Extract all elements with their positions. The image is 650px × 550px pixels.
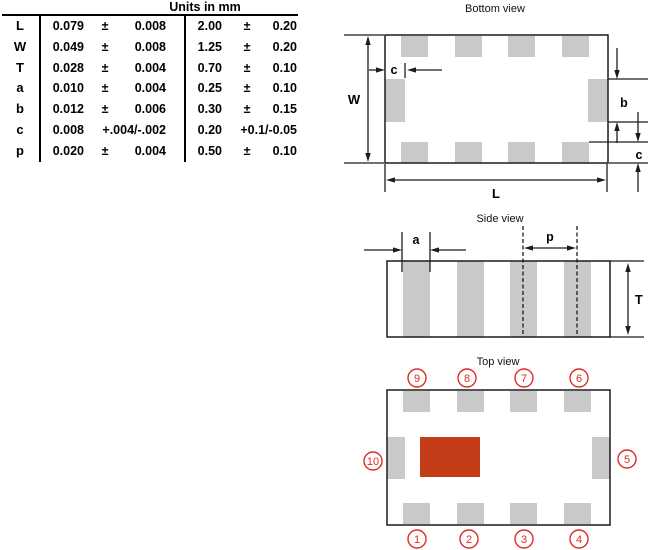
- pin-number: 1: [414, 534, 420, 546]
- arrowhead-icon: [614, 122, 619, 131]
- label-L: L: [492, 186, 500, 201]
- label-a: a: [413, 233, 421, 247]
- pad: [403, 503, 430, 524]
- top-view-drawing: Top view 9 8 7 6 10 5 1 2 3: [330, 355, 650, 550]
- dim-symbol: c: [4, 120, 36, 141]
- dimension-L: L: [385, 164, 607, 201]
- tolerance-mm: +0.1/-0.05: [240, 120, 297, 141]
- table-row: b 0.012 ± 0.006 0.30 ± 0.15: [0, 99, 300, 120]
- pad: [455, 36, 482, 57]
- value-inch: 0.079: [53, 16, 84, 37]
- tolerance-inch: +.004/-.002: [102, 120, 166, 141]
- pin-10: 10: [364, 452, 382, 470]
- dim-symbol: p: [4, 141, 36, 162]
- value-mm: 2.00: [198, 16, 222, 37]
- pin-number: 10: [367, 456, 379, 468]
- value-mm: 0.20: [198, 120, 222, 141]
- pin-number: 7: [521, 373, 527, 385]
- terminal-pads: [385, 36, 608, 163]
- plus-minus: ±: [244, 99, 251, 120]
- tolerance-inch: 0.008: [135, 37, 166, 58]
- label-c: c: [391, 63, 398, 77]
- plus-minus: ±: [102, 78, 109, 99]
- value-mm: 1.25: [198, 37, 222, 58]
- arrowhead-icon: [614, 70, 619, 79]
- value-mm: 0.25: [198, 78, 222, 99]
- pad: [403, 261, 430, 337]
- table-row: L 0.079 ± 0.008 2.00 ± 0.20: [0, 16, 300, 37]
- label-p: p: [546, 230, 554, 244]
- pin-9: 9: [408, 369, 426, 387]
- arrowhead-icon: [430, 247, 439, 252]
- pad: [457, 503, 484, 524]
- pad: [562, 142, 589, 163]
- tolerance-inch: 0.006: [135, 99, 166, 120]
- plus-minus: ±: [244, 78, 251, 99]
- arrowhead-icon: [386, 177, 395, 182]
- pad-side-right: [588, 79, 608, 122]
- pad: [401, 36, 428, 57]
- value-mm: 0.50: [198, 141, 222, 162]
- value-inch: 0.012: [53, 99, 84, 120]
- arrowhead-icon: [625, 263, 630, 272]
- pin-number: 2: [466, 534, 472, 546]
- table-row: T 0.028 ± 0.004 0.70 ± 0.10: [0, 58, 300, 79]
- dimension-b: b: [608, 48, 648, 143]
- tolerance-mm: 0.20: [273, 37, 297, 58]
- label-c: c: [636, 148, 643, 162]
- arrowhead-icon: [635, 163, 640, 172]
- value-inch: 0.010: [53, 78, 84, 99]
- dimension-c-top: c: [369, 63, 442, 78]
- tolerance-inch: 0.004: [135, 78, 166, 99]
- pin-5: 5: [618, 450, 636, 468]
- label-W: W: [348, 92, 361, 107]
- arrowhead-icon: [597, 177, 606, 182]
- value-inch: 0.008: [53, 120, 84, 141]
- pin-6: 6: [570, 369, 588, 387]
- plus-minus: ±: [102, 16, 109, 37]
- tolerance-mm: 0.10: [273, 58, 297, 79]
- arrowhead-icon: [567, 245, 576, 250]
- arrowhead-icon: [524, 245, 533, 250]
- dim-symbol: b: [4, 99, 36, 120]
- dim-symbol: T: [4, 58, 36, 79]
- tolerance-mm: 0.10: [273, 78, 297, 99]
- pad-side-left: [387, 437, 405, 479]
- pin-4: 4: [570, 530, 588, 548]
- tolerance-mm: 0.15: [273, 99, 297, 120]
- units-header: Units in mm: [143, 0, 267, 14]
- value-inch: 0.028: [53, 58, 84, 79]
- pad: [562, 36, 589, 57]
- tolerance-mm: 0.20: [273, 16, 297, 37]
- pad: [564, 391, 591, 412]
- top-view-title: Top view: [477, 356, 520, 368]
- arrowhead-icon: [365, 153, 370, 162]
- pad: [457, 261, 484, 337]
- pad: [455, 142, 482, 163]
- pin-number: 6: [576, 373, 582, 385]
- pin-7: 7: [515, 369, 533, 387]
- pad-side-left: [385, 79, 405, 122]
- dimension-T: T: [610, 261, 644, 337]
- table-row: W 0.049 ± 0.008 1.25 ± 0.20: [0, 37, 300, 58]
- plus-minus: ±: [102, 37, 109, 58]
- pin-number: 5: [624, 454, 630, 466]
- side-view-drawing: Side view a p T: [330, 205, 650, 355]
- table-row: p 0.020 ± 0.004 0.50 ± 0.10: [0, 141, 300, 162]
- plus-minus: ±: [244, 16, 251, 37]
- dim-symbol: W: [4, 37, 36, 58]
- pin-number: 8: [464, 373, 470, 385]
- terminal-stripes: [403, 261, 591, 337]
- plus-minus: ±: [244, 58, 251, 79]
- pin-3: 3: [515, 530, 533, 548]
- plus-minus: ±: [102, 58, 109, 79]
- tolerance-inch: 0.004: [135, 58, 166, 79]
- table-row: a 0.010 ± 0.004 0.25 ± 0.10: [0, 78, 300, 99]
- marking-block: [420, 437, 480, 477]
- table-row: c 0.008 +.004/-.002 0.20 +0.1/-0.05: [0, 120, 300, 141]
- pin-number: 4: [576, 534, 582, 546]
- value-inch: 0.049: [53, 37, 84, 58]
- pin-2: 2: [460, 530, 478, 548]
- pin-number: 3: [521, 534, 527, 546]
- plus-minus: ±: [244, 141, 251, 162]
- pin-8: 8: [458, 369, 476, 387]
- label-T: T: [635, 293, 643, 307]
- plus-minus: ±: [102, 99, 109, 120]
- pad: [564, 503, 591, 524]
- pad: [457, 391, 484, 412]
- plus-minus: ±: [244, 37, 251, 58]
- label-b: b: [620, 96, 628, 110]
- tolerance-inch: 0.008: [135, 16, 166, 37]
- pad-side-right: [592, 437, 610, 479]
- arrowhead-icon: [635, 133, 640, 142]
- value-mm: 0.30: [198, 99, 222, 120]
- dimension-table: Units in mm L 0.079 ± 0.008 2.00 ± 0.20 …: [0, 0, 300, 172]
- side-view-title: Side view: [476, 213, 523, 225]
- tolerance-inch: 0.004: [135, 141, 166, 162]
- dim-symbol: a: [4, 78, 36, 99]
- pin-number: 9: [414, 373, 420, 385]
- pad: [508, 142, 535, 163]
- plus-minus: ±: [102, 141, 109, 162]
- arrowhead-icon: [393, 247, 402, 252]
- pin-1: 1: [408, 530, 426, 548]
- arrowhead-icon: [625, 326, 630, 335]
- arrowhead-icon: [376, 67, 385, 72]
- table-rows: L 0.079 ± 0.008 2.00 ± 0.20 W 0.049 ± 0.…: [0, 16, 300, 162]
- pad: [508, 36, 535, 57]
- pad: [403, 391, 430, 412]
- pad: [401, 142, 428, 163]
- value-mm: 0.70: [198, 58, 222, 79]
- value-inch: 0.020: [53, 141, 84, 162]
- pad: [510, 503, 537, 524]
- arrowhead-icon: [365, 36, 370, 45]
- arrowhead-icon: [407, 67, 416, 72]
- bottom-view-title: Bottom view: [465, 3, 525, 15]
- tolerance-mm: 0.10: [273, 141, 297, 162]
- pad: [510, 391, 537, 412]
- dim-symbol: L: [4, 16, 36, 37]
- dimension-W: W: [344, 35, 384, 163]
- bottom-view-drawing: Bottom view W c b: [330, 0, 650, 205]
